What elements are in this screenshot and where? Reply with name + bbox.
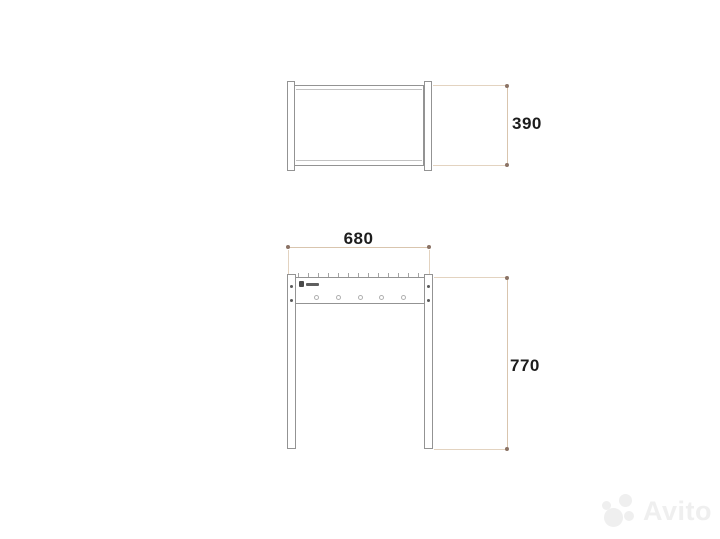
skewer-hole [336, 295, 341, 300]
manufacturer-logo-icon [299, 281, 320, 287]
diagram-canvas: 390 680 770 [0, 0, 720, 539]
dimension-width-label: 680 [330, 230, 387, 247]
avito-logo-circle [604, 508, 623, 527]
dimension-width-extension-right [429, 250, 430, 277]
leg-screw [290, 285, 293, 288]
manufacturer-logo-text [306, 283, 319, 286]
skewer-hole [358, 295, 363, 300]
skewer-holes [314, 294, 406, 300]
dimension-height-line [507, 277, 508, 450]
dimension-depth-extension-bottom [433, 165, 508, 166]
dimension-height-marker-top [505, 276, 509, 280]
leg-screw [427, 299, 430, 302]
dimension-width-marker-left [286, 245, 290, 249]
skewer-hole [379, 295, 384, 300]
dimension-width-line [288, 247, 430, 248]
dimension-width-marker-right [427, 245, 431, 249]
dimension-depth-marker-bottom [505, 163, 509, 167]
skewer-notches [298, 273, 423, 277]
avito-watermark: Avito [601, 494, 712, 528]
dimension-height-extension-top [434, 277, 508, 278]
avito-logo-circle [624, 511, 634, 521]
dimension-height-marker-bottom [505, 447, 509, 451]
dimension-height-label: 770 [510, 357, 540, 374]
leg-screw [290, 299, 293, 302]
avito-logo-circle [619, 494, 632, 507]
dimension-depth-line [507, 85, 508, 166]
leg-screw [427, 285, 430, 288]
dimension-height-extension-bottom [434, 449, 508, 450]
dimension-depth-label: 390 [512, 115, 542, 132]
skewer-hole [401, 295, 406, 300]
top-view-inner-top-line [296, 89, 422, 90]
top-view-body [294, 85, 424, 166]
manufacturer-logo-dot [299, 281, 304, 287]
top-view-left-rail [287, 81, 295, 171]
avito-logo-icon [601, 494, 643, 528]
dimension-depth-extension-top [433, 85, 508, 86]
avito-wordmark: Avito [643, 498, 712, 525]
dimension-width-extension-left [288, 250, 289, 277]
top-view-right-rail [424, 81, 432, 171]
dimension-depth-marker-top [505, 84, 509, 88]
skewer-hole [314, 295, 319, 300]
top-view-inner-bottom-line [296, 160, 422, 161]
